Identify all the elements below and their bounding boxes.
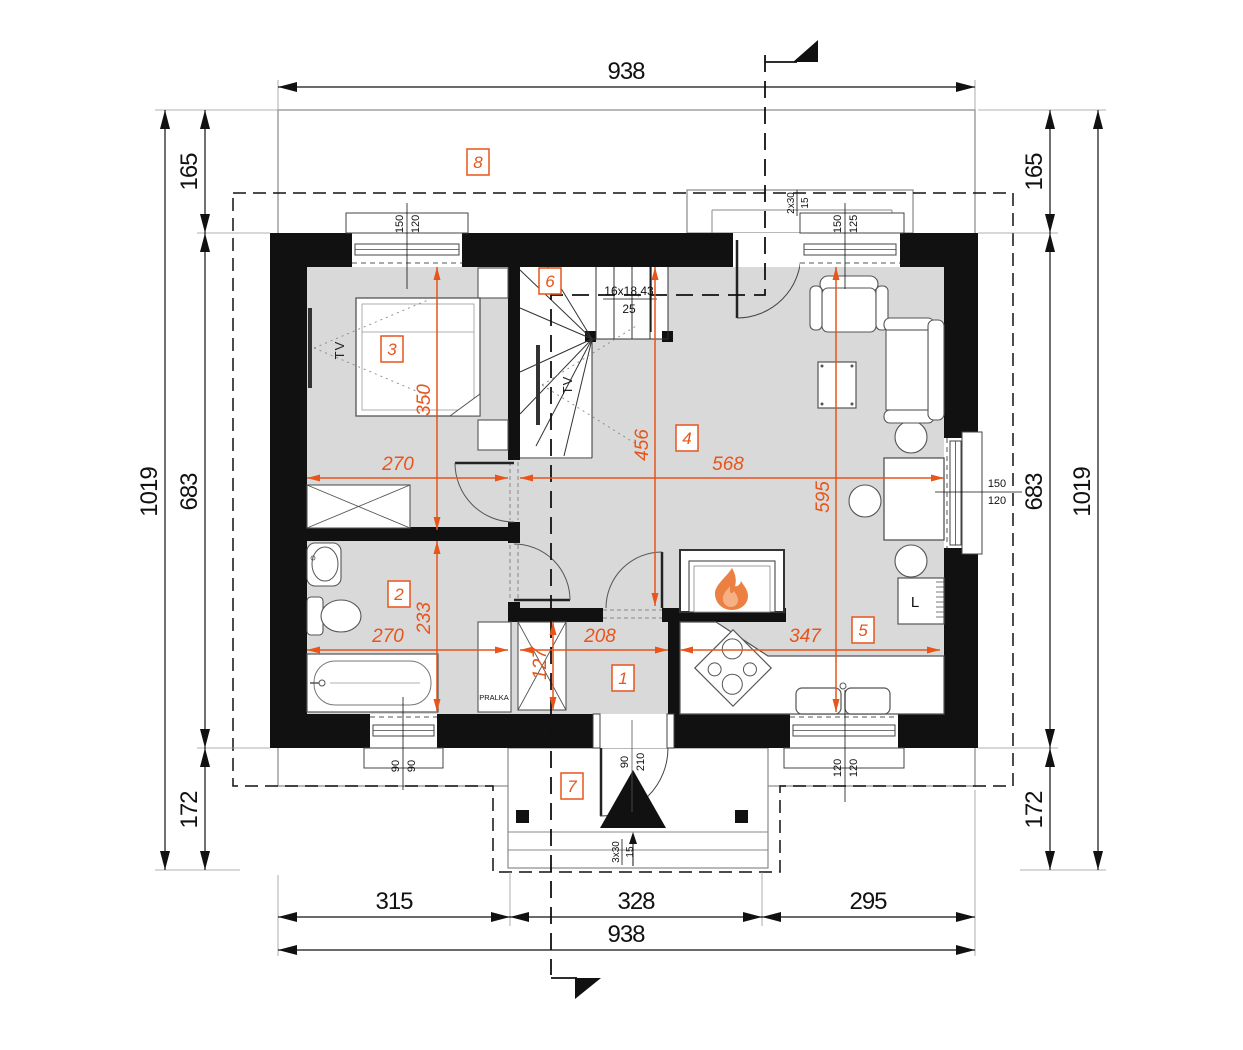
nightstand (478, 420, 508, 450)
tv-bedroom-label: TV (332, 341, 347, 360)
tv-living-label: TV (560, 376, 575, 395)
window-right (944, 432, 982, 554)
dim-bathroom-width: 270 (371, 626, 404, 647)
dim-left-172: 172 (176, 791, 203, 829)
dim-right-172: 172 (1021, 791, 1048, 829)
dim-bottom-315: 315 (375, 888, 413, 915)
room-label-7: 7 (561, 773, 583, 799)
chair (895, 421, 927, 453)
dim-left-total: 1019 (136, 467, 163, 517)
dim-living-depth: 456 (632, 429, 653, 461)
window-bottom-left-width: 90 (390, 760, 402, 772)
room-label-5: 5 (852, 617, 874, 643)
window-bottom-left-height: 90 (406, 760, 418, 772)
fridge-label: L (911, 594, 919, 611)
room-number-7: 7 (567, 777, 577, 796)
sofa (884, 318, 944, 423)
window-bottom-right-height: 120 (848, 759, 860, 777)
entry-door-width: 90 (619, 756, 631, 768)
room-number-1: 1 (618, 669, 627, 688)
porch-steps-rise: 15 (625, 846, 636, 858)
dim-kitchen-width: 347 (789, 626, 822, 647)
room-label-3: 3 (381, 336, 403, 362)
room-number-4: 4 (682, 429, 691, 448)
window-top-right-width: 150 (832, 215, 844, 233)
room-number-5: 5 (858, 621, 868, 640)
washing-machine: PRALKA (478, 622, 511, 712)
dim-living-width: 568 (712, 454, 744, 475)
room-number-8: 8 (473, 153, 483, 172)
dim-left-165: 165 (176, 153, 203, 191)
dim-bedroom-depth: 350 (414, 384, 435, 416)
dim-right-total: 1019 (1069, 467, 1096, 517)
entry-door-height: 210 (635, 753, 647, 771)
stair-width-label: 25 (622, 302, 636, 316)
dim-living-depth2: 595 (813, 481, 834, 513)
floor-plan-canvas: 2x30 15 3x30 15 (0, 0, 1243, 1050)
floor-plan-drawing: 2x30 15 3x30 15 (0, 0, 1243, 1050)
window-bottom-right-width: 120 (832, 759, 844, 777)
window-bottom-right (784, 714, 904, 768)
nightstand (478, 268, 508, 298)
porch-post (735, 810, 748, 823)
dim-bathroom-depth: 233 (414, 602, 435, 635)
room-label-2: 2 (388, 581, 410, 607)
toilet (307, 597, 361, 635)
bathtub (307, 654, 438, 712)
room-number-6: 6 (545, 272, 555, 291)
dim-bottom-total: 938 (607, 921, 645, 948)
window-top-left-height: 120 (410, 215, 422, 233)
window-right-height: 120 (988, 495, 1006, 507)
porch-steps-count: 3x30 (611, 841, 622, 863)
window-right-width: 150 (988, 478, 1006, 490)
room-label-1: 1 (612, 665, 634, 691)
washing-machine-label: PRALKA (479, 693, 509, 702)
dim-hall-depth: 127 (530, 647, 551, 680)
dim-top-total: 938 (607, 58, 645, 85)
section-flag-icon (575, 978, 601, 999)
window-bottom-left (364, 714, 443, 768)
room-label-6: 6 (539, 268, 561, 294)
terrace-steps-rise: 15 (800, 197, 811, 209)
room-number-3: 3 (387, 340, 397, 359)
hall-kitchen-wall (668, 622, 680, 714)
dim-left-683: 683 (176, 473, 203, 511)
dim-right-165: 165 (1021, 153, 1048, 191)
window-top-left-width: 150 (394, 215, 406, 233)
chair (895, 545, 927, 577)
room-number-2: 2 (393, 585, 404, 604)
dining-table (884, 458, 944, 540)
fridge: L (898, 578, 944, 624)
chair (849, 485, 881, 517)
dim-bedroom-width: 270 (381, 454, 414, 475)
coffee-table (818, 362, 856, 408)
armchair (810, 276, 888, 332)
porch-post (516, 810, 529, 823)
fireplace (680, 550, 784, 612)
section-flag-icon (793, 40, 818, 62)
room-label-8: 8 (467, 149, 489, 175)
bedroom-bathroom-wall (307, 527, 508, 541)
terrace-steps-count: 2x30 (786, 192, 797, 214)
dim-bottom-295: 295 (849, 888, 887, 915)
window-top-right-height: 125 (848, 215, 860, 233)
stair-wall (508, 267, 520, 462)
washbasin (307, 543, 341, 586)
room-label-4: 4 (676, 425, 698, 451)
dim-bottom-328: 328 (617, 888, 655, 915)
dim-right-683: 683 (1021, 473, 1048, 511)
dim-hall-width: 208 (583, 626, 616, 647)
bedroom-wardrobe (307, 485, 410, 528)
